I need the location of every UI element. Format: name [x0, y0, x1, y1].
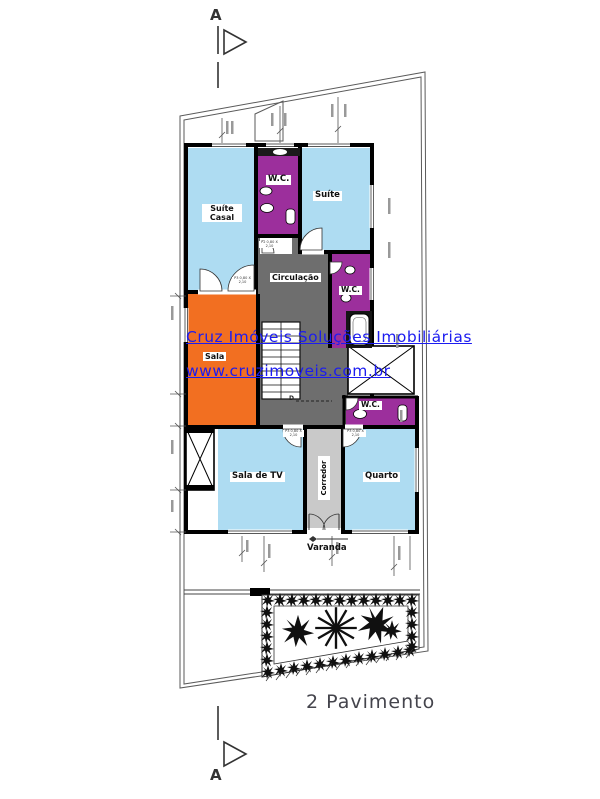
label-suite: Suíte	[313, 191, 342, 201]
wc-top-toilet	[286, 209, 295, 224]
window-right-quarto	[415, 448, 420, 492]
door-tag-p2-wc: P2 0,80 X 2,10	[259, 241, 280, 248]
page-title: 2 Pavimento	[306, 691, 435, 713]
wc-top-basin-1	[260, 187, 272, 195]
stairs-down-label: D	[289, 395, 294, 402]
wc-low-basin	[354, 410, 367, 419]
window-top-suite	[308, 143, 350, 148]
label-varanda: Varanda	[305, 544, 349, 554]
floor-plan-page: A A Suíte Casal W.C. Suíte Circulação W.…	[0, 0, 600, 799]
label-circulacao: Circulação	[270, 273, 321, 282]
floor-plan-drawing	[0, 0, 600, 799]
window-bottom-sala-tv	[228, 530, 292, 535]
section-label-a-bottom: A	[210, 766, 222, 784]
label-sala: Sala	[203, 352, 226, 361]
door-tag-p3-sala-tv: P3 0,80 X 2,10	[283, 430, 304, 437]
window-bottom-quarto	[352, 530, 408, 535]
label-wc-top: W.C.	[266, 175, 291, 185]
section-marker-top	[218, 26, 246, 88]
label-sala-tv: Sala de TV	[230, 472, 285, 482]
label-wc-mid: W.C.	[339, 286, 362, 295]
label-quarto: Quarto	[363, 472, 400, 482]
door-tag-p3-quarto: P3 0,80 X 2,10	[345, 430, 366, 437]
label-corredor: Corredor	[318, 456, 330, 500]
label-suite-casal: Suíte Casal	[202, 204, 242, 222]
wc-mid-toilet	[341, 294, 351, 302]
watermark-line1: Cruz Imóveis Soluções Imobiliárias	[186, 328, 472, 346]
label-wc-low: W.C.	[359, 401, 382, 410]
watermark-line2: www.cruzimoveis.com.br	[186, 362, 391, 380]
wc-top-basin-2	[261, 204, 274, 213]
door-tag-p3-suite-casal: P3 0,80 X 2,10	[232, 277, 253, 284]
garden	[260, 593, 419, 681]
window-top-suite-casal	[212, 143, 246, 148]
entry-notch	[255, 101, 283, 141]
varanda-dim-arrow	[309, 536, 348, 542]
window-right-suite	[370, 185, 375, 228]
shaft-left	[186, 428, 214, 490]
window-right-wc-mid	[370, 268, 375, 300]
section-marker-bottom	[218, 706, 246, 766]
window-top-wc	[266, 143, 294, 148]
section-label-a-top: A	[210, 6, 222, 24]
wc-mid-basin	[345, 266, 355, 274]
wc-top-sink	[273, 149, 287, 155]
